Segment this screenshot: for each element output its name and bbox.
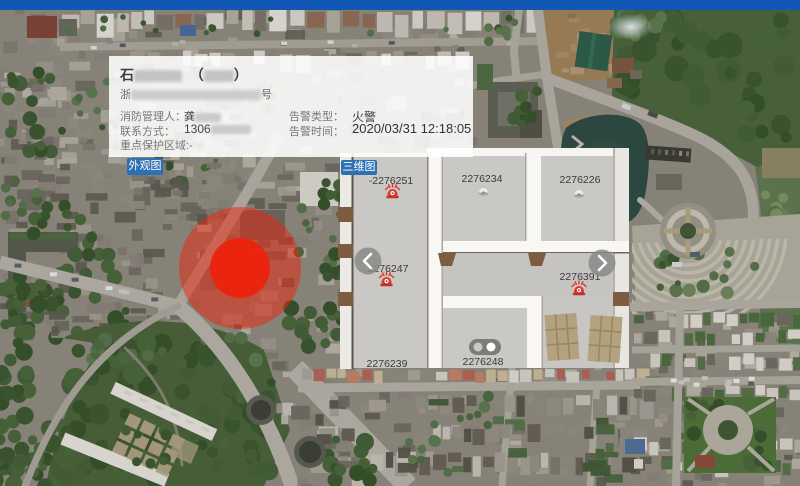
svg-text:2276226: 2276226 [560,174,601,186]
svg-text:2276234: 2276234 [462,173,503,185]
svg-text:2276239: 2276239 [367,358,408,370]
svg-text:2276248: 2276248 [463,356,504,368]
svg-text:-2276251: -2276251 [369,175,414,187]
